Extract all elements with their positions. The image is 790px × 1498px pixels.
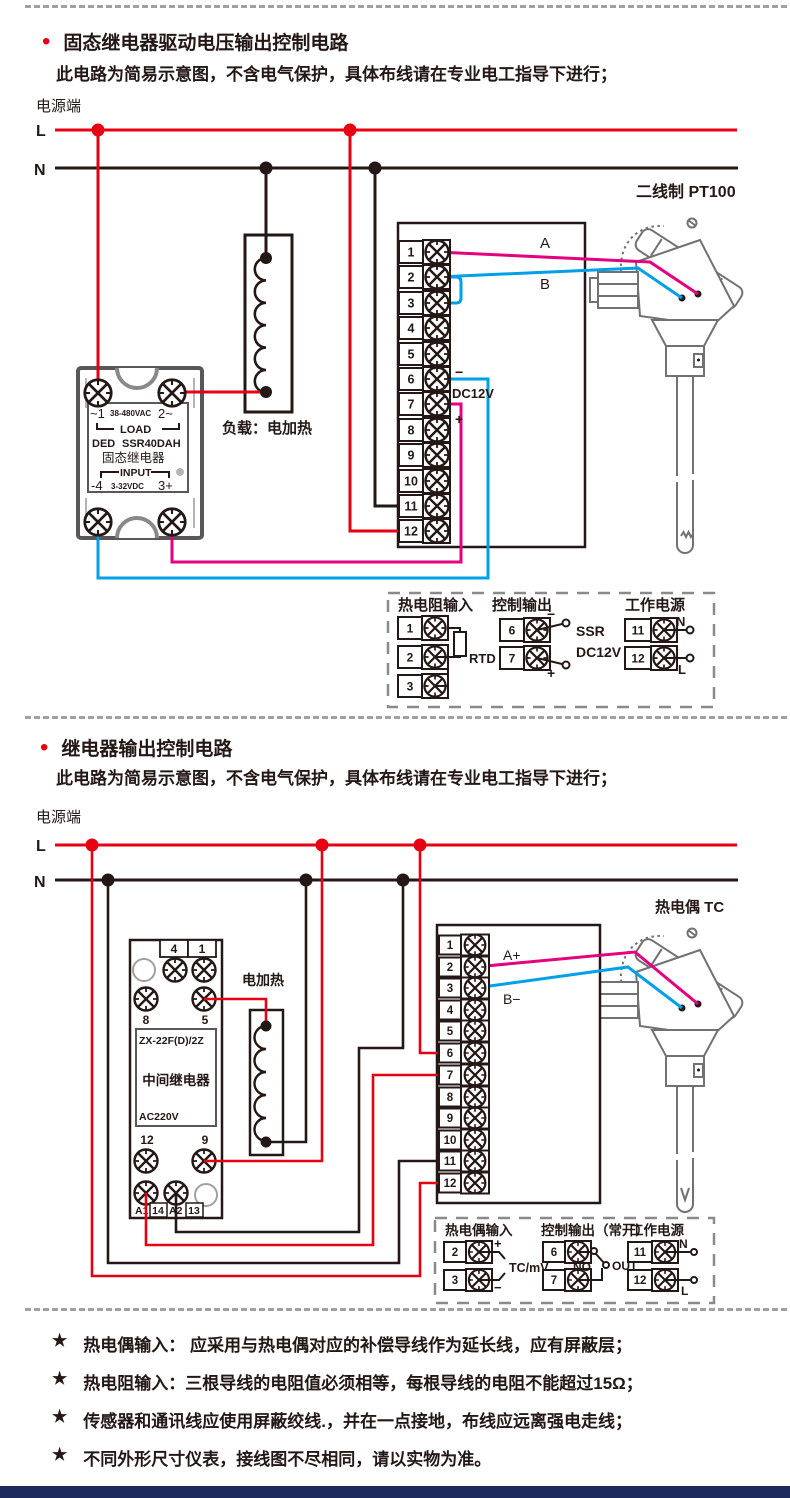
screw-icon <box>159 380 185 406</box>
legend-pwr-title: 工作电源 <box>630 1222 684 1238</box>
legend-pwr-l: L <box>681 1284 688 1298</box>
wire-a-plus-label: A+ <box>503 947 521 963</box>
terminal-number: 11 <box>444 1156 457 1168</box>
heater-label: 电加热 <box>242 972 284 988</box>
terminal-number: 1 <box>408 246 415 260</box>
screw-icon <box>426 470 449 493</box>
live-label: L <box>36 123 46 140</box>
screw-icon <box>426 368 449 391</box>
terminal-number: 6 <box>509 624 516 638</box>
junction-dot <box>316 839 329 852</box>
relay-module: 4 1 8 5 ZX-22F(D)/2Z 中间继电器 AC220V 12 9 A… <box>130 940 222 1218</box>
terminal-number: 5 <box>447 1026 454 1038</box>
screw-icon <box>426 266 449 289</box>
heater-bottom-node <box>261 1137 272 1148</box>
legend-box-2: 热电偶输入 2 3 + − TC/mV 控制输出（常开） 6 7 NO O <box>435 1218 714 1303</box>
terminal-number: 9 <box>447 1113 453 1125</box>
footnotes: ★ 热电偶输入： 应采用与热电偶对应的补偿导线作为延长线，应有屏蔽层； ★ 热电… <box>52 1331 643 1483</box>
relay-pin-14: 14 <box>152 1205 164 1217</box>
terminal-number: 11 <box>632 624 645 638</box>
terminal-row: 12 <box>399 519 450 543</box>
screw-icon <box>135 1150 158 1173</box>
terminal-number: 7 <box>509 652 516 666</box>
terminal-row: 9 <box>399 443 450 467</box>
neutral-label: N <box>34 162 46 179</box>
terminal-row: 12 <box>439 1173 489 1194</box>
sensor-probe <box>677 1086 693 1212</box>
terminal-number: 6 <box>447 1048 453 1060</box>
junction-dot <box>86 839 99 852</box>
legend-out-no: NO <box>573 1260 591 1274</box>
terminal-number: 2 <box>408 271 415 285</box>
legend-tc-plus: + <box>494 1236 502 1251</box>
terminal-number: 8 <box>408 424 415 438</box>
terminal-number: 2 <box>447 962 453 974</box>
terminal-number: 3 <box>452 1275 458 1287</box>
ssr-pin2: 2~ <box>158 406 173 421</box>
relay-voltage: AC220V <box>139 1111 179 1123</box>
screw-icon <box>424 617 445 638</box>
screw-icon <box>465 1108 486 1129</box>
terminal-number: 10 <box>404 475 418 489</box>
relay-pin-13: 13 <box>188 1205 200 1217</box>
ssr-vac-rating: 38-480VAC <box>110 409 151 418</box>
screw-icon <box>426 343 449 366</box>
sensor-label-tc: 热电偶 TC <box>655 898 724 916</box>
terminal-number: 2 <box>407 651 414 665</box>
section2-title: 继电器输出控制电路 <box>61 734 232 761</box>
terminal-number: 6 <box>408 373 415 387</box>
terminal-row: 6 <box>439 1043 489 1064</box>
terminal-row: 8 <box>399 418 450 442</box>
terminal-number: 9 <box>408 449 415 463</box>
terminal-number: 8 <box>447 1092 454 1104</box>
legend-pwr-title: 工作电源 <box>625 596 685 614</box>
rtd-label: RTD <box>469 651 496 666</box>
note-line: ★ 不同外形尺寸仪表，接线图不尽相同，请以实物为准。 <box>52 1445 643 1470</box>
sensor-head-icon <box>590 929 745 1087</box>
sensor-probe <box>677 376 693 553</box>
terminal-row: 7 <box>439 1065 489 1086</box>
relay-pin-4: 4 <box>171 942 178 956</box>
screw-icon <box>193 959 216 982</box>
junction-dot <box>260 162 273 175</box>
wire-b-label: B <box>540 276 550 293</box>
legend-tc-terminals: 2 3 <box>444 1241 492 1291</box>
dc-minus-label: − <box>455 364 463 380</box>
screw-icon <box>426 241 449 264</box>
ssr-pin1: ~1 <box>90 406 105 421</box>
ssr-circuit-diagram: 电源端 L N 二线制 PT100 ~1 38-480VAC 2~ <box>0 96 790 716</box>
note-text: 热电偶输入： 应采用与热电偶对应的补偿导线作为延长线，应有屏蔽层； <box>83 1331 632 1356</box>
heater-bottom-node <box>260 386 272 398</box>
star-icon: ★ <box>52 1445 67 1465</box>
wiring-diagram-page: • 固态继电器驱动电压输出控制电路 此电路为简易示意图，不含电气保护，具体布线请… <box>0 0 790 1498</box>
terminal-number: 11 <box>404 500 417 514</box>
heater-load <box>250 1010 283 1155</box>
screw-icon <box>465 1000 486 1021</box>
terminal-dot-icon <box>687 627 694 634</box>
legend-pwr-l: L <box>678 662 686 677</box>
legend-box-1: 热电阻输入 1 2 3 RTD 控制输出 6 7 − <box>388 593 714 707</box>
section1-subtitle: 此电路为简易示意图，不含电气保护，具体布线请在专业电工指导下进行； <box>56 60 617 85</box>
ssr-pin4: -4 <box>91 478 103 493</box>
screw-icon <box>426 317 449 340</box>
terminal-row: 4 <box>399 316 450 340</box>
section1-heading: • 固态继电器驱动电压输出控制电路 <box>42 28 348 55</box>
legend-rtd-title: 热电阻输入 <box>398 596 473 614</box>
screw-icon <box>426 292 449 315</box>
legend-out-minus: − <box>547 606 555 622</box>
screw-icon <box>465 1173 486 1194</box>
star-icon: ★ <box>52 1331 67 1351</box>
screw-icon <box>465 1043 486 1064</box>
terminal-number: 6 <box>551 1247 557 1259</box>
screw-icon <box>465 1130 486 1151</box>
relay-pin-9: 9 <box>202 1133 209 1147</box>
ssr-brand: DED <box>92 438 115 450</box>
note-text: 热电阻输入：三根导线的电阻值必须相等，每根导线的电阻不能超过15Ω； <box>83 1369 643 1394</box>
terminal-row: 4 <box>439 1000 489 1021</box>
terminal-number: 11 <box>634 1247 647 1259</box>
terminal-dot-icon <box>563 620 570 627</box>
screw-icon <box>465 1151 486 1172</box>
legend-pwr-terminals: 11 12 <box>625 618 677 670</box>
heater-top-node <box>260 252 272 264</box>
dc-plus-label: + <box>455 411 463 427</box>
terminal-number: 3 <box>407 680 414 694</box>
section2-subtitle: 此电路为简易示意图，不含电气保护，具体布线请在专业电工指导下进行； <box>56 764 617 789</box>
terminal-number: 5 <box>408 348 415 362</box>
terminal-number: 10 <box>444 1135 457 1147</box>
terminal-row: 11 <box>399 494 450 518</box>
terminal-row: 2 <box>439 957 489 978</box>
terminal-number: 7 <box>408 398 415 412</box>
footer-bar <box>0 1486 790 1498</box>
terminal-row: 11 <box>439 1151 489 1172</box>
relay-pin-5: 5 <box>202 1013 209 1027</box>
junction-dot <box>300 874 313 887</box>
terminal-row: 10 <box>439 1130 489 1151</box>
terminal-dot-icon <box>563 662 570 669</box>
screw-icon <box>426 393 449 416</box>
live-label: L <box>36 838 46 855</box>
note-line: ★ 热电偶输入： 应采用与热电偶对应的补偿导线作为延长线，应有屏蔽层； <box>52 1331 643 1356</box>
wire-a-label: A <box>540 235 550 252</box>
screw-icon <box>465 1065 486 1086</box>
terminal-number: 2 <box>452 1247 458 1259</box>
terminal-row: 7 <box>399 392 450 416</box>
section1-title: 固态继电器驱动电压输出控制电路 <box>63 28 348 55</box>
bullet-icon: • <box>40 738 48 758</box>
terminal-row: 6 <box>399 367 450 391</box>
screw-icon <box>135 988 158 1011</box>
legend-out-title: 控制输出 <box>492 596 552 614</box>
ssr-input-text: INPUT <box>120 467 152 479</box>
terminal-number: 4 <box>447 1005 454 1017</box>
top-dashed-separator <box>25 5 787 8</box>
screw-icon <box>426 419 449 442</box>
relay-hole-icon <box>133 959 155 981</box>
screw-icon <box>465 935 486 956</box>
ssr-vdc-rating: 3-32VDC <box>111 482 144 491</box>
terminal-row: 3 <box>399 291 450 315</box>
star-icon: ★ <box>52 1369 67 1389</box>
terminal-number: 7 <box>551 1275 557 1287</box>
junction-dot <box>92 124 105 137</box>
terminal-row: 10 <box>399 469 450 493</box>
screw-icon <box>426 520 449 543</box>
terminal-dot-icon <box>691 1249 697 1255</box>
screw-icon <box>164 959 187 982</box>
junction-dot <box>102 874 115 887</box>
terminal-row: 8 <box>439 1087 489 1108</box>
legend-tc-title: 热电偶输入 <box>445 1222 513 1238</box>
screw-icon <box>426 444 449 467</box>
relay-circuit-diagram: 电源端 L N 热电偶 TC 4 1 8 <box>0 800 790 1312</box>
legend-out-dc: DC12V <box>576 644 622 660</box>
terminal-row: 3 <box>439 978 489 999</box>
screw-icon <box>85 509 111 535</box>
sensor-head-icon <box>590 219 745 377</box>
ssr-model: SSR40DAH <box>122 438 181 450</box>
power-side-label: 电源端 <box>36 98 81 115</box>
relay-pin-8: 8 <box>143 1013 150 1027</box>
relay-pin-12: 12 <box>140 1133 154 1147</box>
terminal-number: 12 <box>631 652 645 666</box>
terminal-number: 12 <box>444 1178 457 1190</box>
relay-name: 中间继电器 <box>142 1072 210 1088</box>
dc12v-label: DC12V <box>452 386 494 401</box>
legend-tc-minus: − <box>494 1280 502 1295</box>
ssr-pin3: 3+ <box>158 478 173 493</box>
wire-b-minus-label: B− <box>503 991 521 1007</box>
screw-icon <box>465 957 486 978</box>
legend-out-plus: + <box>547 665 555 681</box>
note-line: ★ 传感器和通讯线应使用屏蔽绞线.，并在一点接地，布线应远离强电走线； <box>52 1407 643 1432</box>
terminal-number: 3 <box>447 983 453 995</box>
terminal-number: 1 <box>407 622 414 636</box>
screw-icon <box>465 1021 486 1042</box>
note-text: 传感器和通讯线应使用屏蔽绞线.，并在一点接地，布线应远离强电走线； <box>83 1407 632 1432</box>
star-icon: ★ <box>52 1407 67 1427</box>
ssr-load-text: LOAD <box>120 424 151 436</box>
neutral-label: N <box>34 874 46 891</box>
note-text: 不同外形尺寸仪表，接线图不尽相同，请以实物为准。 <box>83 1445 491 1470</box>
power-side-label: 电源端 <box>36 809 81 826</box>
junction-dot <box>369 162 382 175</box>
terminal-number: 12 <box>404 525 418 539</box>
terminal-row: 5 <box>399 342 450 366</box>
note-line: ★ 热电阻输入：三根导线的电阻值必须相等，每根导线的电阻不能超过15Ω； <box>52 1369 643 1394</box>
terminal-dot-icon <box>687 655 694 662</box>
load-label: 负载：电加热 <box>222 419 312 437</box>
junction-dot <box>397 874 410 887</box>
screw-icon <box>426 495 449 518</box>
relay-model: ZX-22F(D)/2Z <box>139 1035 204 1047</box>
terminal-number: 12 <box>634 1275 647 1287</box>
legend-pwr-n: N <box>679 1237 688 1251</box>
legend-out-ssr: SSR <box>576 623 605 639</box>
terminal-number: 3 <box>408 297 415 311</box>
screw-icon <box>159 509 185 535</box>
ssr-name: 固态继电器 <box>102 451 165 465</box>
legend-out-terminals: 6 7 <box>500 618 550 670</box>
relay-pin-1: 1 <box>199 942 206 956</box>
terminal-row: 2 <box>399 265 450 289</box>
middle-dashed-separator <box>25 716 787 719</box>
bullet-icon: • <box>42 32 50 52</box>
terminal-number: 1 <box>447 940 454 952</box>
tc-sensor <box>590 929 745 1213</box>
terminal-row: 9 <box>439 1108 489 1129</box>
screw-icon <box>465 978 486 999</box>
screw-icon <box>465 1087 486 1108</box>
junction-dot <box>344 124 357 137</box>
heater-top-node <box>261 1021 272 1032</box>
screw-icon <box>85 380 111 406</box>
terminal-row: 1 <box>399 240 450 264</box>
terminal-row: 1 <box>439 935 489 956</box>
ssr-led-icon <box>176 468 184 476</box>
sensor-label-pt100: 二线制 PT100 <box>636 182 736 201</box>
terminal-row: 5 <box>439 1021 489 1042</box>
terminal-number: 7 <box>447 1070 453 1082</box>
terminal-dot-icon <box>691 1277 697 1283</box>
legend-pwr-n: N <box>676 614 685 629</box>
section2-heading: • 继电器输出控制电路 <box>40 734 232 761</box>
terminal-number: 4 <box>408 322 415 336</box>
junction-dot <box>414 839 427 852</box>
